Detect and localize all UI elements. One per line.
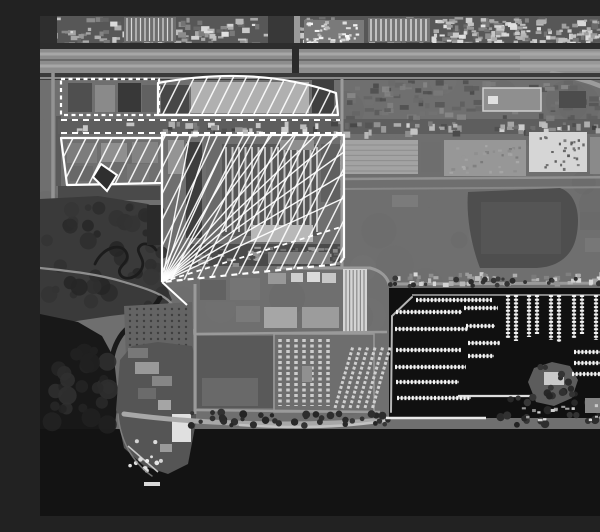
dark-field-inner: [481, 202, 561, 254]
boatyard-bldg3: [152, 376, 172, 386]
bldg-s-small3: [307, 272, 320, 282]
boatyard-bldg2: [135, 362, 159, 374]
boatyard-bldg6: [160, 444, 172, 452]
bldg-a1: [68, 83, 92, 112]
bldg-mid1: [421, 142, 441, 172]
aerial-photo: [40, 16, 600, 516]
bldg-s1: [343, 193, 385, 208]
rv-center-bldg: [302, 366, 312, 382]
bldg-a4: [142, 85, 157, 112]
bldg-c5: [127, 164, 149, 180]
bldg-s-small2: [291, 273, 303, 282]
bldg-a3: [118, 83, 141, 112]
bldg-ne-dark: [559, 91, 586, 108]
bldg-s-small4: [322, 273, 336, 283]
bldg-d1: [168, 140, 184, 174]
tree-line-north: [40, 43, 600, 49]
warehouse-4: [590, 137, 600, 174]
aerial-photo-svg: [40, 16, 600, 516]
freeway-overpass: [292, 46, 299, 76]
warehouse-s1: [264, 307, 297, 328]
boatyard-bldg4: [138, 388, 156, 399]
dirt-field-light: [202, 378, 258, 406]
bldg-s-small1: [268, 273, 286, 284]
boatyard-bldg5: [158, 400, 171, 410]
warehouse-s2: [302, 307, 339, 328]
bldg-a2: [95, 85, 115, 112]
dark-bldg-marsh: [147, 205, 161, 245]
bldg-d4: [321, 144, 340, 202]
bldg-row-s3: [230, 278, 260, 300]
boat-moored: [144, 482, 160, 486]
bldg-s4: [236, 306, 260, 322]
bldg-se1: [580, 212, 600, 230]
bldg-c3: [132, 142, 158, 163]
dark-block-mid: [268, 16, 296, 43]
bldg-s2: [392, 195, 418, 207]
dark-block-left: [40, 16, 57, 44]
boatyard-bldg1: [128, 348, 148, 358]
bldg-se2: [585, 238, 600, 252]
warehouse-ne-roof: [488, 96, 498, 104]
bldg-row-s2: [200, 280, 226, 300]
